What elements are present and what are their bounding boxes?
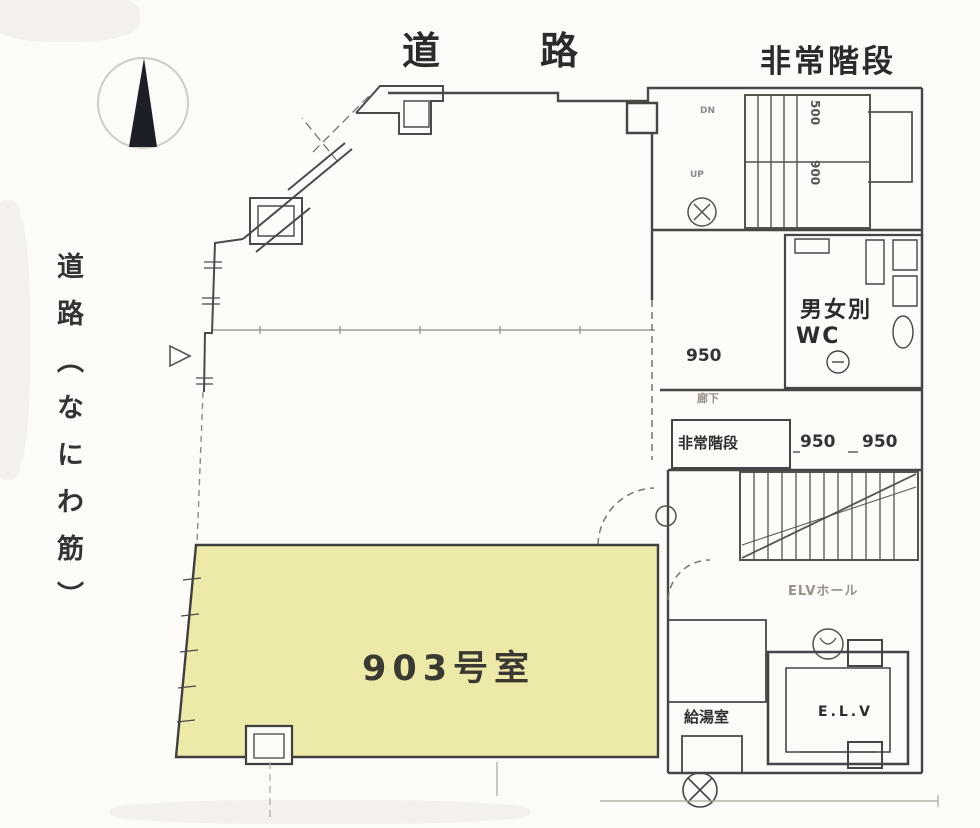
bottom-reference-lines [270, 762, 938, 820]
dim-500-stair: 500 [808, 100, 822, 125]
dim-900-stair: 900 [808, 160, 822, 185]
road-label-west: 道路（なにわ筋） [48, 252, 87, 628]
road-label-top-left: 道 [402, 20, 442, 75]
stairwell-label: 非常階段 [678, 432, 738, 453]
road-label-top-right: 路 [540, 20, 580, 75]
floor-plan-scan: 道 路 非常階段 道路（なにわ筋） 903号室 男女別 WC 非常階段 廊下 9… [0, 0, 980, 828]
emergency-stairs-label: 非常階段 [760, 36, 896, 81]
manhole-icon [683, 773, 717, 807]
elevator-label: E.L.V [818, 704, 873, 720]
dim-950-b: 950 [862, 432, 898, 452]
elevator-hall [813, 629, 843, 659]
dim-950-a: 950 [800, 432, 836, 452]
interior-line-mid [213, 326, 655, 334]
room-903-label: 903号室 [362, 640, 535, 691]
stair-up-label: UP [690, 170, 704, 180]
elv-hall-label: ELVホール [788, 580, 858, 599]
wc-label-line2: WC [796, 324, 840, 349]
emergency-stair-steps [745, 95, 912, 228]
wc-label-line1: 男女別 [800, 292, 872, 324]
stair-dn-label: DN [700, 106, 715, 116]
pantry-label: 給湯室 [684, 706, 729, 727]
building-outline-northwest [170, 86, 443, 544]
dim-950-corridor: 950 [686, 346, 722, 366]
corridor-label: 廊下 [697, 390, 719, 406]
main-stair-steps [740, 472, 918, 560]
north-compass-icon [98, 58, 188, 148]
